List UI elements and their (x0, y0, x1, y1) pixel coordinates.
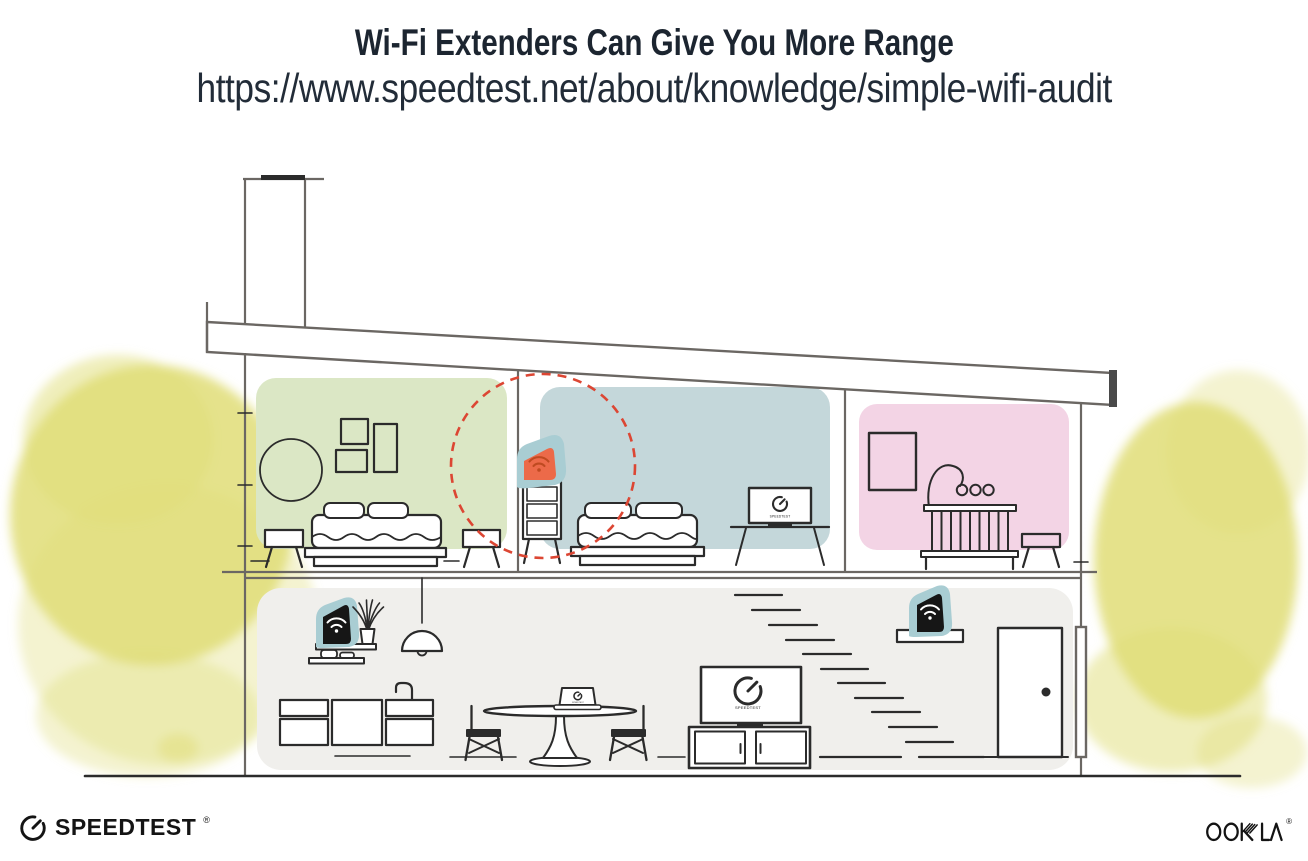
downspout (1076, 627, 1086, 757)
house-illustration: SPEEDTEST (0, 0, 1308, 861)
laptop-screen-label: SPEEDTEST (572, 702, 584, 704)
ookla-wordmark (1206, 818, 1284, 844)
tv-upstairs: SPEEDTEST (749, 488, 811, 527)
speedtest-wordmark: SPEEDTEST (55, 812, 196, 842)
media-console (689, 727, 810, 768)
wifi-extender-device (517, 435, 566, 488)
foliage-right (1077, 370, 1308, 788)
tv-area: SPEEDTEST (689, 667, 810, 768)
tv-screen-label: SPEEDTEST (770, 515, 791, 519)
door-knob (1042, 688, 1051, 697)
ookla-trademark: ® (1286, 818, 1292, 826)
chimney (243, 175, 324, 331)
laptop: SPEEDTEST (554, 688, 601, 710)
tv-downstairs: SPEEDTEST (701, 667, 801, 727)
dresser (523, 482, 561, 563)
speedtest-gauge-icon (18, 812, 48, 842)
nursery-pink-bg (859, 404, 1069, 550)
speedtest-logo: SPEEDTEST ® (18, 812, 210, 842)
tv-screen-label: SPEEDTEST (735, 705, 761, 710)
speedtest-trademark: ® (203, 816, 210, 825)
ookla-logo: OOKLA ® (1206, 818, 1292, 844)
